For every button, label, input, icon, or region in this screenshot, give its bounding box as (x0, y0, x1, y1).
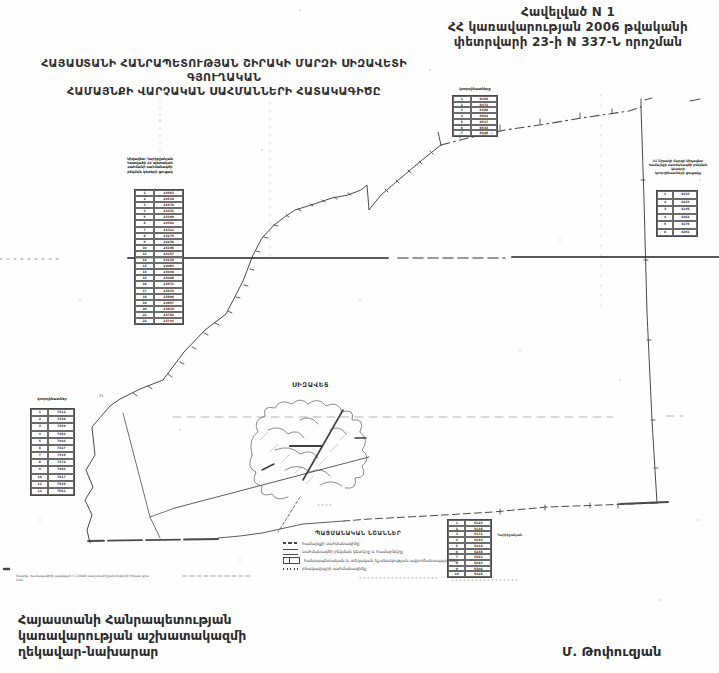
scanned-map-sheet: Հավելված N 1 ՀՀ կառավարության 2006 թվակա… (0, 0, 719, 673)
table-cell: 8548 (471, 130, 497, 136)
legend-item: բնակավայրի սահմանագիծը (283, 565, 433, 574)
table-cell: 4215 (673, 191, 697, 199)
table-cell: 10 (448, 571, 465, 577)
table-cell: 7312 (48, 409, 74, 416)
lower-left-table-header: կոորդինատներ (30, 397, 74, 401)
signatory-line1: Հայաստանի Հանրապետության (18, 612, 246, 628)
table-cell: 6 (31, 445, 48, 452)
lower-left-coordinate-table: 1731227336373594738157404674277744987472… (30, 408, 75, 496)
table-cell: 12 (31, 488, 48, 495)
table-row: 77449 (31, 452, 74, 459)
table-cell: 7449 (48, 452, 74, 459)
table-row: 105328 (448, 571, 491, 577)
table-cell: 7404 (48, 438, 74, 445)
corner-flag-ne (641, 98, 700, 107)
left-table-header: Սիզավետ-Ղարիբջանյանհատվածի ՀՀ պետականսահ… (110, 157, 190, 174)
table-cell: 5 (657, 221, 673, 229)
legend-item-label: բնակավայրի սահմանագիծը (302, 566, 366, 571)
legend-item: համայնքի սահմանագիծը (283, 539, 433, 548)
table-cell: 2 (31, 416, 48, 423)
table-row: 14215 (657, 191, 697, 199)
table-row: 64291 (657, 229, 697, 237)
table-cell: 7539 (48, 481, 74, 488)
table-cell: 4 (31, 431, 48, 438)
left-coordinate-table: 1245632245183244764244315243906243527243… (134, 189, 184, 325)
signatory-line2: կառավարության աշխատակազմի (18, 628, 246, 644)
table-cell: 9 (31, 466, 48, 473)
table-cell: 22 (135, 318, 154, 324)
table-cell: 4 (657, 214, 673, 222)
table-row: 47381 (31, 431, 74, 438)
table-row: 27336 (31, 416, 74, 423)
table-row: 107517 (31, 474, 74, 481)
top-coordinate-table: 18456284713848948502585176853378548 (452, 95, 498, 137)
table-cell: 2 (657, 199, 673, 207)
table-cell: 5 (31, 438, 48, 445)
table-cell: 8 (31, 459, 48, 466)
settlement-hatching (260, 432, 348, 484)
table-row: 57404 (31, 438, 74, 445)
table-cell: 7336 (48, 416, 74, 423)
table-row: 67427 (31, 445, 74, 452)
signatory-block: Հայաստանի Հանրապետության կառավարության ա… (18, 612, 246, 660)
right-coordinate-table: 142152423334248442625427964291 (656, 190, 698, 237)
table-cell: 10 (31, 474, 48, 481)
table-cell: 3 (31, 423, 48, 430)
table-row: 127561 (31, 488, 74, 495)
table-row: 2223744 (135, 318, 183, 324)
settlement-label: ՍԻԶԱՎԵՏ (292, 381, 329, 389)
table-cell: 4262 (673, 214, 697, 222)
table-cell: 23744 (154, 318, 183, 324)
legend-items: համայնքի սահմանագիծը սահմանագծի բեկման կ… (283, 539, 433, 573)
appendix-line1: Հավելված N 1 (420, 5, 716, 20)
table-cell: 7494 (48, 466, 74, 473)
table-cell: 4291 (673, 229, 697, 237)
table-cell: 7561 (48, 488, 74, 495)
legend-item-label: համայնքի սահմանագիծը (302, 541, 359, 546)
table-cell: 7517 (48, 474, 74, 481)
appendix-header: Հավելված N 1 ՀՀ կառավարության 2006 թվակա… (420, 5, 716, 50)
table-cell: 7427 (48, 445, 74, 452)
legend-title: ՊԱՅՄԱՆԱԿԱՆ ՆՇԱՆՆԵՐ (283, 529, 433, 536)
legend-item-label: հանրապետական և տեղական նշանակության ավտո… (304, 558, 458, 563)
table-row: 97494 (31, 466, 74, 473)
table-row: 44262 (657, 214, 697, 222)
table-cell: 6 (657, 229, 673, 237)
table-cell: 7472 (48, 459, 74, 466)
table-cell: 11 (31, 481, 48, 488)
table-cell: 7381 (48, 431, 74, 438)
bottom-table-side-label: Ղարիբջանյան (497, 533, 541, 537)
right-table-header: ՀՀ Շիրակի մարզի Սիզավետհամայնքի սահմանագ… (640, 160, 716, 176)
table-cell: 5328 (465, 571, 491, 577)
map-title: ՀԱՅԱՍՏԱՆԻ ՀԱՆՐԱՊԵՏՈՒԹՅԱՆ ՇԻՐԱԿԻ ՄԱՐԶԻ ՍԻ… (18, 57, 430, 99)
table-cell: 4279 (673, 221, 697, 229)
boundary-ticks (133, 109, 658, 514)
table-cell: 7 (31, 452, 48, 459)
map-title-line2: ՀԱՄԱՅՆՔԻ ՎԱՐՉԱԿԱՆ ՍԱՀՄԱՆՆԵՐԻ ՀԱՏԱԿԱԳԻԾԸ (18, 85, 430, 99)
road-box-symbol-icon (283, 557, 300, 564)
table-row: 78548 (453, 130, 497, 136)
appendix-line3: փետրվարի 23-ի N 337-Ն որոշման (420, 35, 716, 50)
dotted-line-symbol-icon (283, 568, 298, 570)
legend-item: հանրապետական և տեղական նշանակության ավտո… (283, 556, 433, 565)
boundary-south-dashed (344, 503, 657, 521)
table-cell: 7 (453, 130, 471, 136)
scan-artifacts (0, 95, 719, 580)
appendix-line2: ՀՀ կառավարության 2006 թվականի (420, 20, 716, 35)
boundary-branch-tick (438, 132, 441, 145)
interior-line (123, 413, 175, 538)
table-cell: 3 (657, 206, 673, 214)
table-row: 37359 (31, 423, 74, 430)
signatory-line3: ղեկավար-նախարար (18, 644, 246, 660)
bottom-coordinate-table: 1512425148351714519355216652387526185283… (447, 519, 492, 578)
margin-note-line2: ՄԱԶ (16, 579, 166, 583)
margin-note-line1: Ծանոթ․ հատակագիծը կազմված է 1:10000 մասշ… (16, 575, 166, 579)
table-cell: 1 (657, 191, 673, 199)
boundary-corner-number: 31 (99, 394, 103, 398)
table-cell: 7359 (48, 423, 74, 430)
table-row: 87472 (31, 459, 74, 466)
table-row: 54279 (657, 221, 697, 229)
table-row: 24233 (657, 199, 697, 207)
legend: ՊԱՅՄԱՆԱԿԱՆ ՆՇԱՆՆԵՐ համայնքի սահմանագիծը … (283, 529, 433, 573)
signature-name: Մ. Թոփուզյան (562, 644, 661, 659)
top-table-header: կոորդինատները (448, 87, 502, 91)
table-row: 117539 (31, 481, 74, 488)
dash-line-symbol-icon (283, 542, 298, 544)
table-cell: 4248 (673, 206, 697, 214)
map-title-line1: ՀԱՅԱՍՏԱՆԻ ՀԱՆՐԱՊԵՏՈՒԹՅԱՆ ՇԻՐԱԿԻ ՄԱՐԶԻ ՍԻ… (18, 57, 430, 85)
table-cell: 4233 (673, 199, 697, 207)
double-line-symbol-icon (283, 549, 298, 555)
legend-item: սահմանագծի բեկման կետերը և համարները (283, 548, 433, 557)
table-cell: 1 (31, 409, 48, 416)
table-row: 34248 (657, 206, 697, 214)
table-row: 17312 (31, 409, 74, 416)
margin-note: Ծանոթ․ հատակագիծը կազմված է 1:10000 մասշ… (16, 575, 166, 583)
legend-item-label: սահմանագծի բեկման կետերը և համարները (302, 549, 403, 554)
boundary-south-dark (88, 539, 218, 541)
